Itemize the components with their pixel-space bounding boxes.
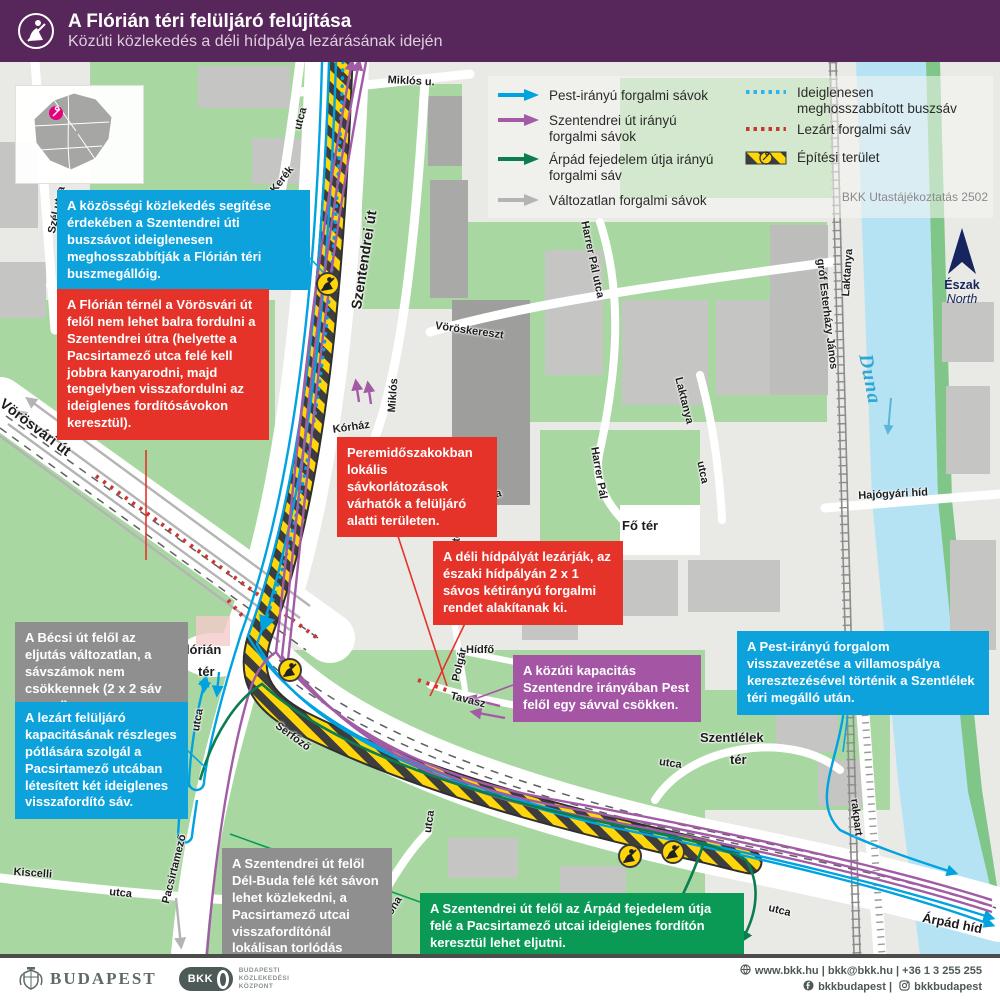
compass-label-en: North xyxy=(930,292,994,306)
callout-arpad-via-turnaround: A Szentendrei út felől az Árpád fejedele… xyxy=(420,893,744,960)
legend-item-szentendrei-lanes: Szentendrei út irányú forgalmi sávok xyxy=(496,113,677,145)
place-label-florian-ter: tér xyxy=(198,664,215,679)
legend-label: Szentendrei út irányú forgalmi sávok xyxy=(549,113,677,145)
budapest-inset-map xyxy=(15,85,144,184)
legend-item-extended-bus-lane: Ideiglenesen meghosszabbított buszsáv xyxy=(744,85,957,117)
street-label-kiscelli-utca: utca xyxy=(109,886,133,900)
globe-icon xyxy=(740,964,751,975)
infographic-page: A Flórián téri felüljáró felújítása Közú… xyxy=(0,0,1000,1000)
legend-item-unchanged-lanes: Változatlan forgalmi sávok xyxy=(496,193,707,209)
budapest-logo: BUDAPEST xyxy=(18,966,157,992)
arrow-right-icon xyxy=(496,152,540,166)
bkk-logo-text: BKK xyxy=(188,973,213,985)
header: A Flórián téri felüljáró felújítása Közú… xyxy=(0,0,1000,62)
roadworks-icon xyxy=(16,11,56,51)
social-line: bkkbudapest | bkkbudapest xyxy=(740,979,982,996)
street-label-miklos: Miklós xyxy=(386,378,400,413)
budapest-crest-icon xyxy=(18,966,44,992)
place-label-fo-ter: Fő tér xyxy=(622,518,658,533)
legend-label: Pest-irányú forgalmi sávok xyxy=(549,88,708,104)
arrow-right-icon xyxy=(496,113,540,127)
social-separator: | xyxy=(889,981,892,993)
callout-local-lane-restrictions: Peremidőszakokban lokális sávkorlátozáso… xyxy=(337,437,497,537)
dotted-line-icon xyxy=(744,122,788,136)
callout-pest-traffic-return: A Pest-irányú forgalom visszavezetése a … xyxy=(737,631,989,715)
legend-label: Változatlan forgalmi sávok xyxy=(549,193,707,209)
compass-label-hu: Észak xyxy=(930,278,994,292)
legend-credit: BKK Utastájékoztatás 2502 xyxy=(744,190,988,204)
budapest-districts-icon xyxy=(16,86,143,183)
callout-south-deck-closed: A déli hídpályát lezárják, az északi híd… xyxy=(433,541,623,625)
bkk-org-text: BUDAPESTI KÖZLEKEDÉSI KÖZPONT xyxy=(239,967,290,991)
legend-label: Árpád fejedelem útja irányú forgalmi sáv xyxy=(549,152,713,184)
page-title: A Flórián téri felüljáró felújítása xyxy=(68,11,442,33)
page-subtitle: Közúti közlekedés a déli hídpálya lezárá… xyxy=(68,33,442,51)
arrow-right-icon xyxy=(496,193,540,207)
callout-no-left-turn: A Flórián térnél a Vörösvári út felől ne… xyxy=(57,289,269,440)
budapest-logo-text: BUDAPEST xyxy=(50,969,157,989)
legend-label: Lezárt forgalmi sáv xyxy=(797,122,911,138)
legend-label: Építési terület xyxy=(797,150,880,166)
place-label-szentlelek-ter: tér xyxy=(730,752,747,767)
footer: BUDAPEST BKK BUDAPESTI KÖZLEKEDÉSI KÖZPO… xyxy=(0,954,1000,1000)
callout-capacity-reduced: A közúti kapacitás Szentendre irányában … xyxy=(513,655,701,722)
legend-item-pest-lanes: Pest-irányú forgalmi sávok xyxy=(496,88,708,104)
facebook-icon xyxy=(803,980,814,991)
bkk-badge: BKK xyxy=(179,967,233,991)
street-label-miklos-u: Miklós u. xyxy=(387,74,435,88)
legend-item-closed-lane: Lezárt forgalmi sáv xyxy=(744,122,911,138)
contact-text: www.bkk.hu | bkk@bkk.hu | +36 1 3 255 25… xyxy=(755,965,982,977)
facebook-handle: bkkbudapest xyxy=(818,981,886,993)
dotted-line-icon xyxy=(744,85,788,99)
instagram-handle: bkkbudapest xyxy=(914,981,982,993)
place-label-szentlelek: Szentlélek xyxy=(700,730,764,745)
legend-item-construction-area: Építési terület xyxy=(744,150,880,166)
construction-hatch-icon xyxy=(744,150,788,166)
legend-item-arpad-lane: Árpád fejedelem útja irányú forgalmi sáv xyxy=(496,152,713,184)
bkk-circle-icon xyxy=(217,970,229,989)
callout-turnaround-lanes: A lezárt felüljáró kapacitásának részleg… xyxy=(15,702,188,819)
bkk-logo: BKK BUDAPESTI KÖZLEKEDÉSI KÖZPONT xyxy=(179,967,290,991)
legend-label: Ideiglenesen meghosszabbított buszsáv xyxy=(797,85,957,117)
street-label-hidfo: Hídfő xyxy=(466,644,494,656)
contact-line: www.bkk.hu | bkk@bkk.hu | +36 1 3 255 25… xyxy=(740,963,982,980)
arrow-right-icon xyxy=(496,88,540,102)
instagram-icon xyxy=(899,980,910,991)
callout-bus-lane-extension: A közösségi közlekedés segítése érdekébe… xyxy=(57,190,310,290)
